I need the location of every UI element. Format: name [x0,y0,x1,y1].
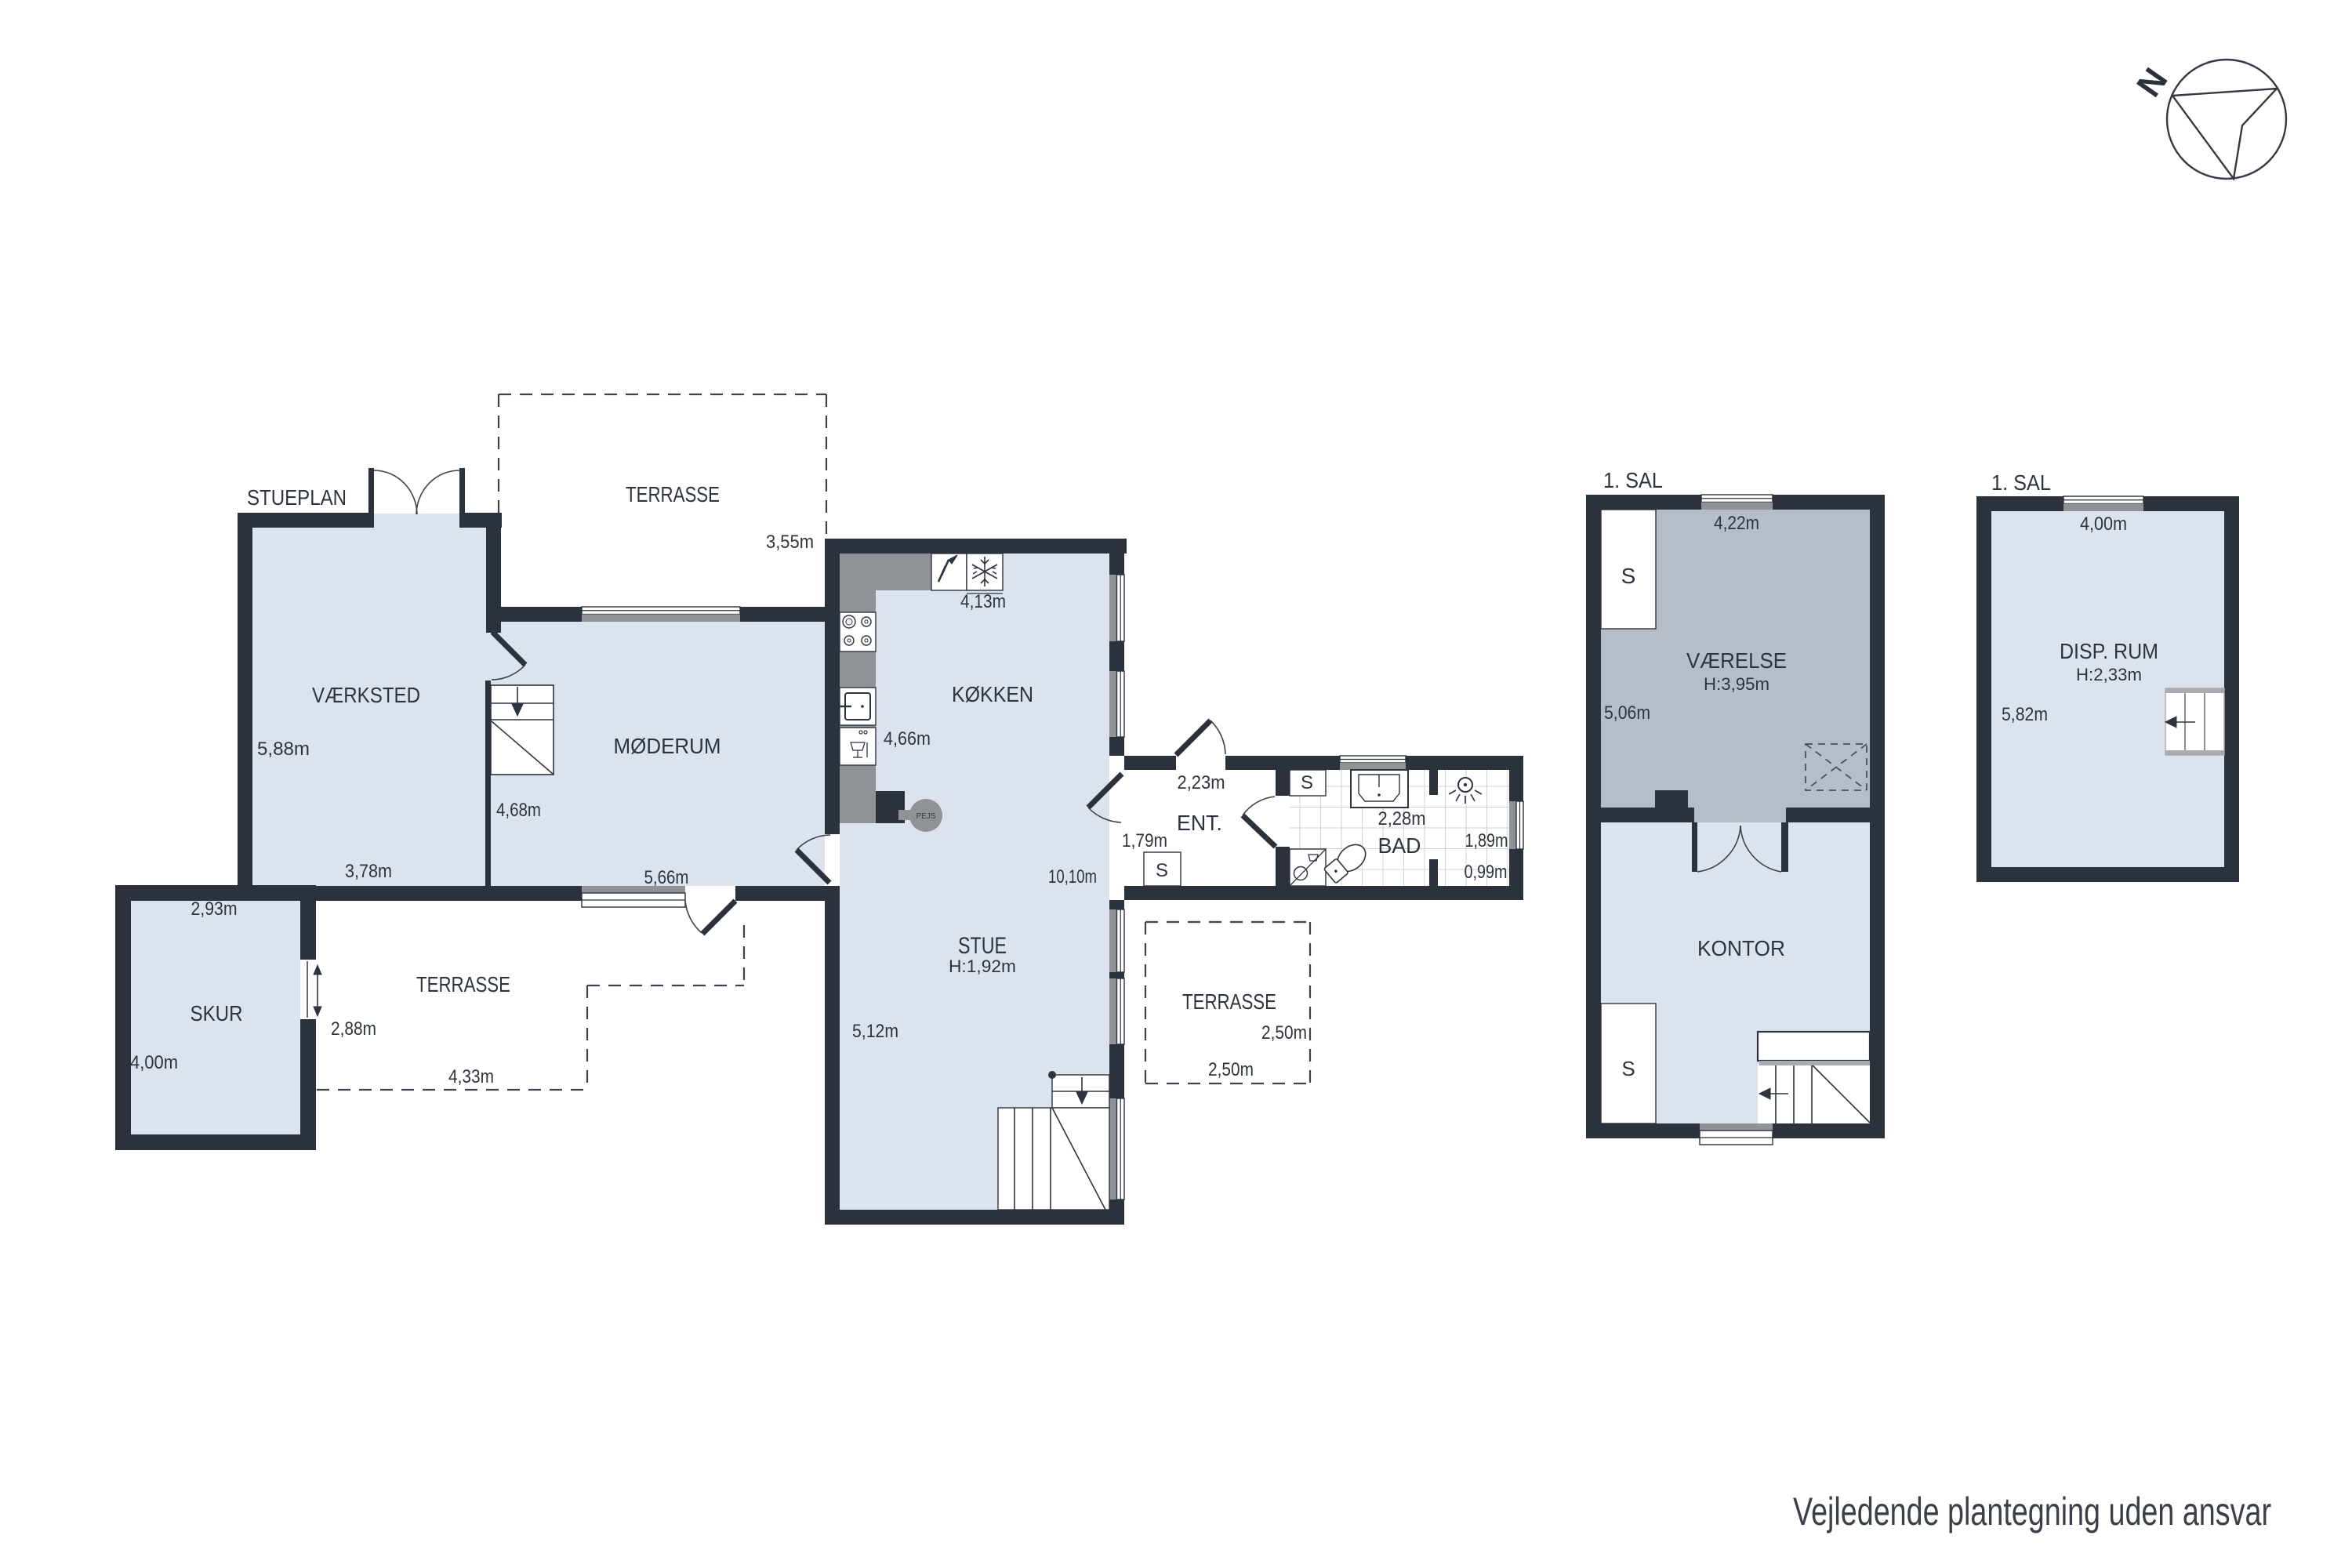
svg-text:4,68m: 4,68m [496,800,541,821]
svg-text:2,50m: 2,50m [1208,1059,1254,1080]
svg-text:PEJS: PEJS [916,812,935,821]
svg-text:2,28m: 2,28m [1378,808,1426,829]
svg-text:1,89m: 1,89m [1465,830,1508,851]
svg-text:TERRASSE: TERRASSE [1182,989,1276,1014]
svg-text:DISP. RUM: DISP. RUM [2060,639,2158,663]
svg-text:3,78m: 3,78m [345,861,392,882]
svg-text:H:3,95m: H:3,95m [1704,674,1769,694]
svg-text:5,06m: 5,06m [1604,702,1650,724]
svg-text:4,66m: 4,66m [884,728,931,750]
svg-text:MØDERUM: MØDERUM [614,734,721,758]
svg-text:KONTOR: KONTOR [1697,936,1785,960]
svg-text:2,93m: 2,93m [191,898,238,920]
svg-text:4,22m: 4,22m [1714,513,1759,534]
svg-text:KØKKEN: KØKKEN [952,682,1033,706]
svg-text:H:2,33m: H:2,33m [2076,665,2142,684]
svg-text:1,79m: 1,79m [1122,830,1167,851]
svg-text:BAD: BAD [1378,833,1421,858]
svg-text:1. SAL: 1. SAL [1603,468,1663,492]
svg-text:2,23m: 2,23m [1178,772,1225,793]
svg-text:S: S [1156,860,1168,881]
svg-text:S: S [1621,1057,1635,1080]
svg-text:TERRASSE: TERRASSE [416,972,510,996]
svg-text:5,82m: 5,82m [2002,704,2048,725]
svg-text:3,55m: 3,55m [766,532,814,553]
svg-text:SKUR: SKUR [191,1001,243,1025]
svg-text:2,88m: 2,88m [331,1018,376,1040]
svg-text:4,33m: 4,33m [448,1066,494,1087]
svg-text:VÆRKSTED: VÆRKSTED [312,683,420,707]
svg-text:2,50m: 2,50m [1261,1022,1307,1044]
svg-text:TERRASSE: TERRASSE [626,482,720,506]
svg-text:4,13m: 4,13m [960,591,1006,612]
svg-text:VÆRELSE: VÆRELSE [1686,648,1787,673]
svg-text:1. SAL: 1. SAL [1991,470,2051,495]
svg-text:5,66m: 5,66m [644,867,689,888]
svg-text:10,10m: 10,10m [1048,866,1097,887]
svg-text:5,12m: 5,12m [852,1021,898,1042]
svg-text:STUEPLAN: STUEPLAN [247,485,347,510]
svg-text:0,99m: 0,99m [1465,862,1508,883]
svg-text:ENT.: ENT. [1177,811,1222,835]
svg-text:STUE: STUE [958,933,1007,959]
svg-text:5,88m: 5,88m [257,739,310,760]
svg-text:H:1,92m: H:1,92m [949,956,1016,976]
svg-text:4,00m: 4,00m [130,1052,178,1073]
svg-text:4,00m: 4,00m [2080,514,2127,535]
svg-text:S: S [1301,772,1313,793]
svg-text:S: S [1621,564,1636,588]
svg-text:Vejledende plantegning uden an: Vejledende plantegning uden ansvar [1793,1490,2271,1534]
